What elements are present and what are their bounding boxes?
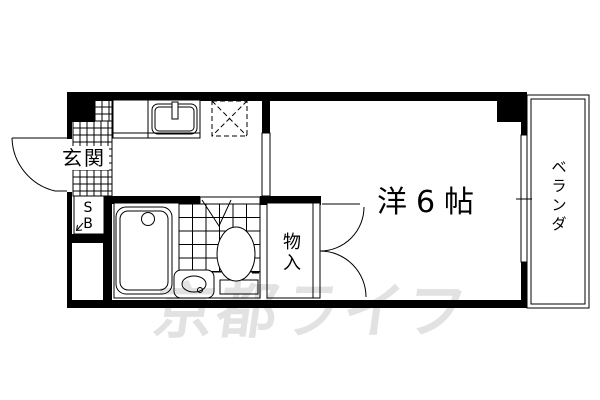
wall-pillar-top-right [497, 92, 527, 122]
veranda-label-char-4: ダ [551, 215, 566, 233]
shoe-box-label-s: S [84, 200, 93, 216]
veranda-label-char-2: ラ [551, 177, 566, 195]
floor-plan: 玄関 S B [0, 0, 600, 400]
bathroom-area [114, 197, 260, 298]
shoe-box-label-b: B [83, 216, 93, 232]
main-room-label: 洋6帖 [377, 185, 483, 220]
wall-left-upper [67, 101, 72, 139]
entrance-tile-grid-upper [95, 100, 112, 121]
kitchen-area [113, 100, 270, 196]
wall-left-lower [67, 192, 72, 308]
wall-below-window [521, 262, 527, 300]
storage-door-swing-lower [320, 251, 366, 297]
bathtub-drain-icon [142, 213, 155, 226]
wall-under-shoebox [67, 234, 112, 243]
floor-plan-drawing: 玄関 S B [0, 0, 600, 400]
shoe-box: S B [74, 196, 104, 234]
kitchen-faucet-icon [172, 102, 178, 119]
storage-door-closed [313, 203, 320, 298]
veranda-label-char-1: ベ [551, 158, 566, 176]
entrance-label: 玄関 [62, 146, 106, 170]
storage-area: 物 入 [267, 203, 366, 298]
kitchen-counter [113, 100, 200, 138]
toilet-bowl-icon [217, 227, 255, 281]
entrance-area: 玄関 [12, 100, 112, 196]
toilet-tank-icon [220, 280, 258, 294]
veranda-area: ベ ラ ン ダ [516, 95, 589, 308]
washbasin-icon [174, 270, 214, 298]
main-room: 洋6帖 [322, 185, 483, 220]
storage-label-char-1: 物 [283, 232, 301, 253]
entry-door-swing-arc [12, 138, 55, 191]
wall-above-window [521, 122, 527, 135]
storage-door-swing-upper [320, 207, 364, 251]
wall-bottom [67, 300, 527, 308]
veranda-label-char-3: ン [551, 196, 566, 214]
wall-kitchen-room-upper [262, 101, 270, 133]
kitchen-room-partition [262, 133, 270, 196]
storage-label-char-2: 入 [283, 253, 301, 274]
